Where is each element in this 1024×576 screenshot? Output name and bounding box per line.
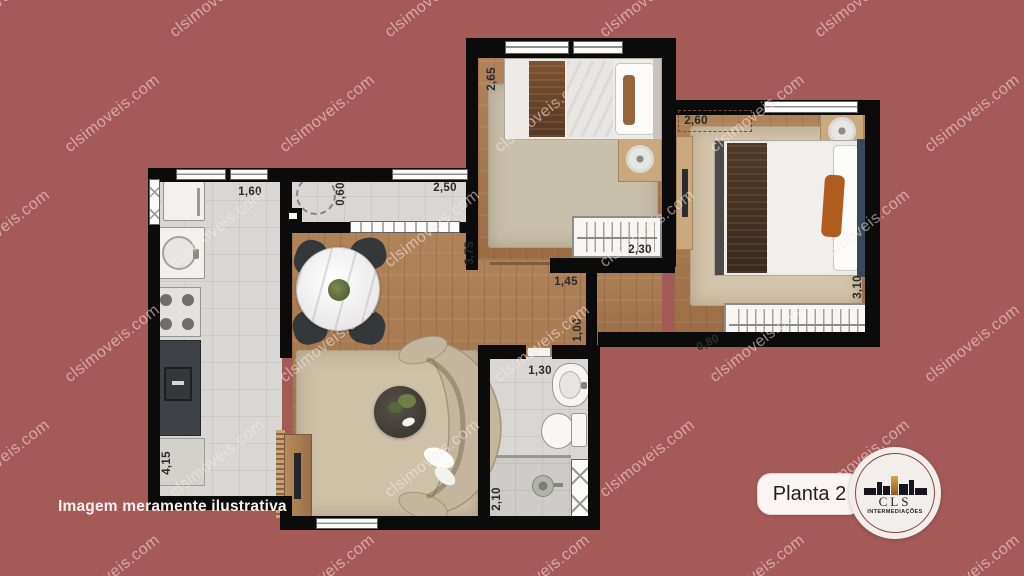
accent-pillow [623,75,635,125]
wall [466,38,478,270]
watermark-text: clsimoveis.com [0,416,54,501]
single-bed [504,58,662,140]
bathroom-door [527,347,551,357]
watermark-text: clsimoveis.com [277,71,379,156]
measurement-service-depth: 0,60 [335,182,347,206]
cls-logo: CLS INTERMEDIAÇÕES [849,447,941,539]
watermark-text: clsimoveis.com [62,531,164,576]
toilet [541,413,575,449]
window [176,169,226,180]
bed-duvet [567,61,613,137]
window [392,169,468,180]
wall [280,168,292,358]
measurement-service-width: 2,50 [433,182,457,194]
watermark-text: clsimoveis.com [597,0,699,42]
measurement-kitchen-depth: 4,15 [161,451,173,475]
wall [550,258,675,273]
measurement-hall-depth: 1,00 [572,318,584,342]
pillar [284,208,302,224]
wall [588,345,600,530]
tv [294,453,301,499]
bathroom-sink [552,363,590,407]
footboard [715,141,724,275]
plant [388,402,402,413]
fridge [163,181,205,221]
wall [460,222,478,233]
service-counter-window [350,221,460,233]
plant-centerpiece [328,279,350,301]
wall [552,345,590,359]
wall [662,38,676,267]
window [573,41,623,54]
bed-runner [529,61,565,137]
bed-duvet [769,143,831,273]
headboard [653,59,661,139]
wall [598,332,880,347]
coffee-table [374,386,426,438]
door-threshold [490,262,550,265]
dining-table [296,247,380,331]
measurement-bedroom1-depth: 2,65 [486,67,498,91]
kitchen-counter [153,340,201,436]
tv-icon [682,169,688,217]
window [505,41,569,54]
shower-glass-door [571,459,589,517]
watermark-text: clsimoveis.com [922,301,1024,386]
watermark-text: clsimoveis.com [812,0,914,42]
dresser-tv [676,136,693,250]
buildings-icon [849,473,941,495]
wall [865,100,880,347]
measurement-bathroom-depth: 2,10 [491,487,503,511]
measurement-bedroom1-wardrobe: 2,30 [628,244,652,256]
window [316,518,378,529]
window [764,101,858,113]
measurement-hall-width: 1,45 [554,276,578,288]
shower-drain [532,475,554,497]
logo-subtitle: INTERMEDIAÇÕES [849,509,941,515]
watermark-text: clsimoveis.com [382,0,484,42]
stove [153,287,201,337]
shower-arm [553,483,563,487]
window [230,169,268,180]
kitchen-vent-window [149,179,160,225]
wall [478,359,490,518]
bed-pillows [615,63,655,135]
toilet-tank [571,413,587,447]
watermark-text: clsimoveis.com [62,71,164,156]
measurement-bedroom2-depth: 3,10 [852,275,864,299]
wall [586,273,597,347]
wall [478,345,526,359]
measurement-bedroom2-width: 2,60 [684,115,708,127]
watermark-text: clsimoveis.com [0,0,54,42]
watermark-text: clsimoveis.com [707,531,809,576]
watermark-text: clsimoveis.com [492,531,594,576]
double-bed [714,140,866,276]
disclaimer-text: Imagem meramente ilustrativa [58,498,287,516]
measurement-bathroom-width: 1,30 [528,365,552,377]
watermark-text: clsimoveis.com [922,531,1024,576]
plan-name-badge: Planta 2 [757,473,862,515]
watermark-text: clsimoveis.com [167,0,269,42]
watermark-text: clsimoveis.com [277,531,379,576]
measurement-living-depth: 3,75 [464,241,476,265]
bed-runner [727,143,767,273]
floor-plan-image: 1,60 0,60 2,50 2,65 2,30 2,60 3,75 1,45 … [0,0,1024,576]
watermark-text: clsimoveis.com [922,71,1024,156]
kitchen-sink [153,227,205,279]
watermark-text: clsimoveis.com [597,416,699,501]
wall [466,38,675,58]
logo-name: CLS [849,494,941,510]
watermark-text: clsimoveis.com [0,186,54,271]
measurement-kitchen-width: 1,60 [238,186,262,198]
table-lamp [626,145,654,173]
